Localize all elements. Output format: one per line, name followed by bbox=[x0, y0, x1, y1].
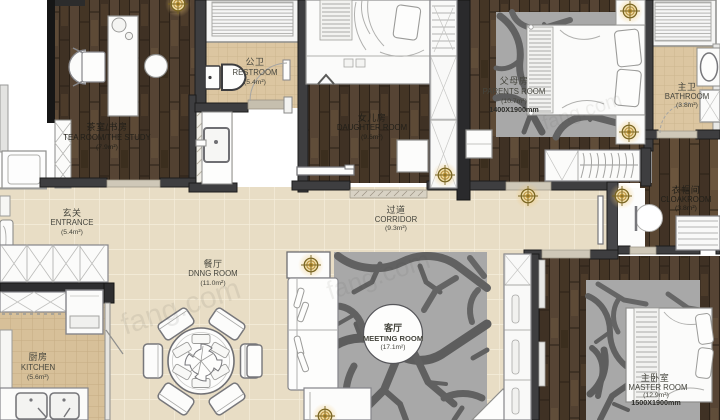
svg-text:父母房: 父母房 bbox=[500, 75, 529, 86]
svg-text:衣帽间: 衣帽间 bbox=[672, 184, 701, 195]
svg-text:餐厅: 餐厅 bbox=[203, 258, 222, 269]
svg-text:主卧室: 主卧室 bbox=[641, 372, 670, 383]
svg-text:(5.4m²): (5.4m²) bbox=[61, 229, 83, 236]
svg-text:厨房: 厨房 bbox=[28, 351, 47, 362]
svg-text:(10.7m²): (10.7m²) bbox=[501, 98, 527, 105]
svg-text:CORRIDOR: CORRIDOR bbox=[375, 215, 418, 224]
svg-text:1500X1900mm: 1500X1900mm bbox=[631, 398, 681, 407]
svg-text:KITCHEN: KITCHEN bbox=[21, 363, 55, 372]
svg-text:女儿房: 女儿房 bbox=[358, 112, 387, 123]
svg-text:MASTER ROOM: MASTER ROOM bbox=[629, 383, 688, 392]
svg-text:主卫: 主卫 bbox=[677, 81, 696, 92]
svg-text:过道: 过道 bbox=[386, 204, 405, 215]
svg-text:(17.1m²): (17.1m²) bbox=[381, 344, 406, 351]
svg-text:公卫: 公卫 bbox=[245, 57, 264, 67]
svg-text:ENTRANCE: ENTRANCE bbox=[51, 218, 94, 227]
svg-text:BATHROOM: BATHROOM bbox=[665, 92, 709, 101]
svg-text:PARENTS ROOM: PARENTS ROOM bbox=[483, 87, 546, 96]
svg-text:玄关: 玄关 bbox=[62, 207, 81, 218]
svg-text:茶室/书房: 茶室/书房 bbox=[86, 121, 127, 132]
svg-text:(5.6m²): (5.6m²) bbox=[27, 374, 49, 381]
svg-text:(5.4m²): (5.4m²) bbox=[244, 79, 266, 86]
svg-text:MEETING ROOM: MEETING ROOM bbox=[363, 334, 423, 343]
svg-text:(3.8m²): (3.8m²) bbox=[676, 102, 698, 109]
svg-text:客厅: 客厅 bbox=[383, 322, 402, 333]
svg-text:(3.8m²): (3.8m²) bbox=[675, 205, 697, 212]
svg-text:RESTROOM: RESTROOM bbox=[232, 68, 277, 77]
svg-text:TEA ROOM/THE STUDY: TEA ROOM/THE STUDY bbox=[63, 133, 151, 142]
svg-text:CLOAKROOM: CLOAKROOM bbox=[661, 195, 712, 204]
svg-text:DAUGHTER ROOM: DAUGHTER ROOM bbox=[337, 123, 407, 132]
svg-text:(9.6m²): (9.6m²) bbox=[361, 134, 383, 141]
svg-text:(7.9m²): (7.9m²) bbox=[96, 144, 118, 151]
svg-text:1400X1900mm: 1400X1900mm bbox=[489, 105, 539, 114]
svg-text:(9.3m²): (9.3m²) bbox=[385, 225, 407, 232]
